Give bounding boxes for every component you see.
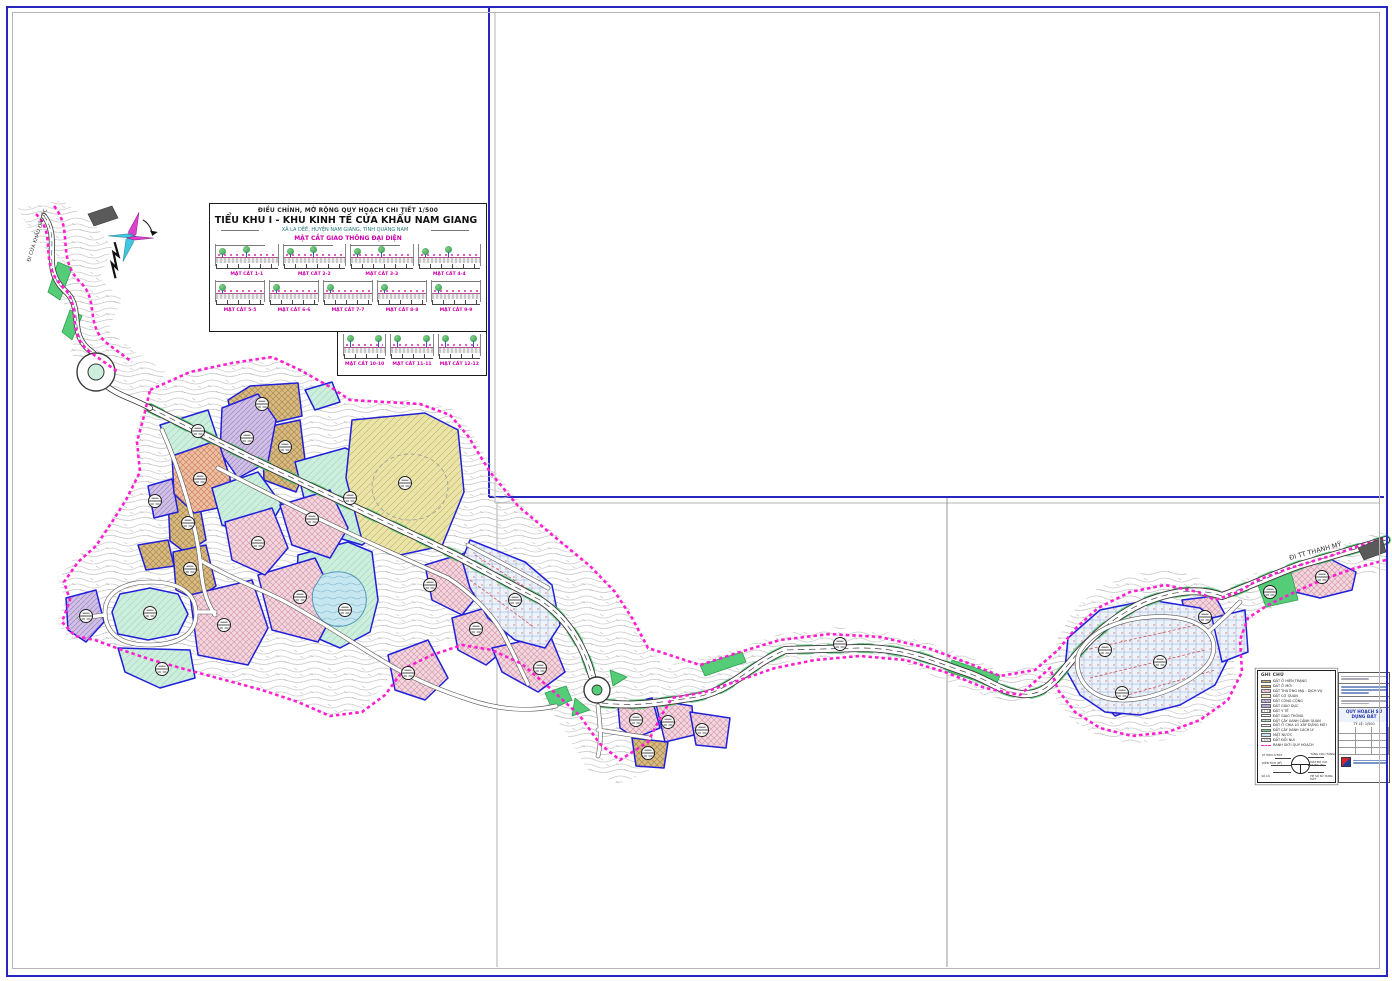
cross-section: MẶT CẮT 3-3 [349, 243, 415, 277]
legend-swatch [1261, 733, 1271, 737]
cross-section: MẶT CẮT 12-12 [437, 333, 482, 367]
legend-swatch [1261, 738, 1271, 742]
cross-section: MẶT CẮT 6-6 [268, 279, 320, 313]
legend-swatch [1261, 699, 1271, 703]
title-block: QUY HOẠCH SỬ DỤNG ĐẤT TỶ LỆ: 1/500 [1338, 672, 1390, 783]
cross-section: MẶT CẮT 9-9 [430, 279, 482, 313]
project-type: ĐIỀU CHỈNH, MỞ RỘNG QUY HOẠCH CHI TIẾT 1… [210, 207, 486, 214]
cross-section: MẶT CẮT 1-1 [214, 243, 280, 277]
legend-swatch [1261, 685, 1271, 689]
cross-section: MẶT CẮT 7-7 [322, 279, 374, 313]
signature-table [1339, 727, 1389, 755]
cross-section: MẶT CẮT 8-8 [376, 279, 428, 313]
cross-section-row-1: MẶT CẮT 1-1 MẶT CẮT 2-2 MẶT CẮT 3-3 MẶT … [210, 242, 486, 278]
legend-swatch [1261, 714, 1271, 718]
sheet-section-lines [489, 8, 1384, 967]
title-block-footer [1339, 755, 1389, 768]
title-block-project [1339, 684, 1389, 698]
pond [312, 572, 366, 627]
legend-swatch [1261, 719, 1271, 723]
cross-section: MẶT CẮT 5-5 [214, 279, 266, 313]
cross-section-row-3: MẶT CẮT 10-10 MẶT CẮT 11-11 MẶT CẮT 12-1… [337, 332, 487, 376]
inset-title-box: ĐIỀU CHỈNH, MỞ RỘNG QUY HOẠCH CHI TIẾT 1… [209, 203, 487, 332]
legend-swatch [1261, 709, 1271, 713]
legend-item-boundary: RANH GIỚI QUY HOẠCH [1261, 743, 1333, 748]
cross-section: MẶT CẮT 4-4 [417, 243, 483, 277]
cross-section: MẶT CẮT 10-10 [342, 333, 387, 367]
title-block-subproject [1339, 697, 1389, 708]
legend-swatch [1261, 704, 1271, 708]
legend-title: GHI CHÚ [1261, 673, 1333, 678]
company-logo [1341, 757, 1351, 767]
legend-swatch [1261, 729, 1271, 733]
legend-swatch [1261, 694, 1271, 698]
page-title: TIỂU KHU I - KHU KINH TẾ CỬA KHẨU NAM GI… [206, 215, 486, 226]
legend-swatch [1261, 680, 1271, 684]
legend-swatch [1261, 745, 1271, 746]
parcel-symbol-key: KÝ HIỆU Ô ĐẤT TẦNG CAO (TẦNG) DIỆN TÍCH … [1261, 749, 1333, 785]
legend: GHI CHÚ ĐẤT Ở HIỆN TRẠNG ĐẤT Ở MỚI ĐẤT T… [1257, 670, 1336, 783]
location-subtitle: XÃ LA DÊÊ, HUYỆN NAM GIANG, TỈNH QUẢNG N… [207, 227, 483, 233]
cross-section-row-2: MẶT CẮT 5-5 MẶT CẮT 6-6 MẶT CẮT 7-7 MẶT … [210, 278, 486, 314]
drawing-name: QUY HOẠCH SỬ DỤNG ĐẤT [1339, 708, 1389, 722]
site-plan-map: ĐI TT THẠNH MỸ ĐI CỬA KHẨU ĐẮC ỐC [0, 0, 1392, 981]
cross-section: MẶT CẮT 2-2 [282, 243, 348, 277]
sections-header: MẶT CẮT GIAO THÔNG ĐẠI DIỆN [210, 235, 486, 242]
legend-swatch [1261, 689, 1271, 693]
legend-swatch [1261, 724, 1271, 728]
title-block-agency [1339, 673, 1389, 684]
drawing-sheet: ĐI TT THẠNH MỸ ĐI CỬA KHẨU ĐẮC ỐC ĐIỀU C… [0, 0, 1392, 981]
cross-section: MẶT CẮT 11-11 [389, 333, 434, 367]
